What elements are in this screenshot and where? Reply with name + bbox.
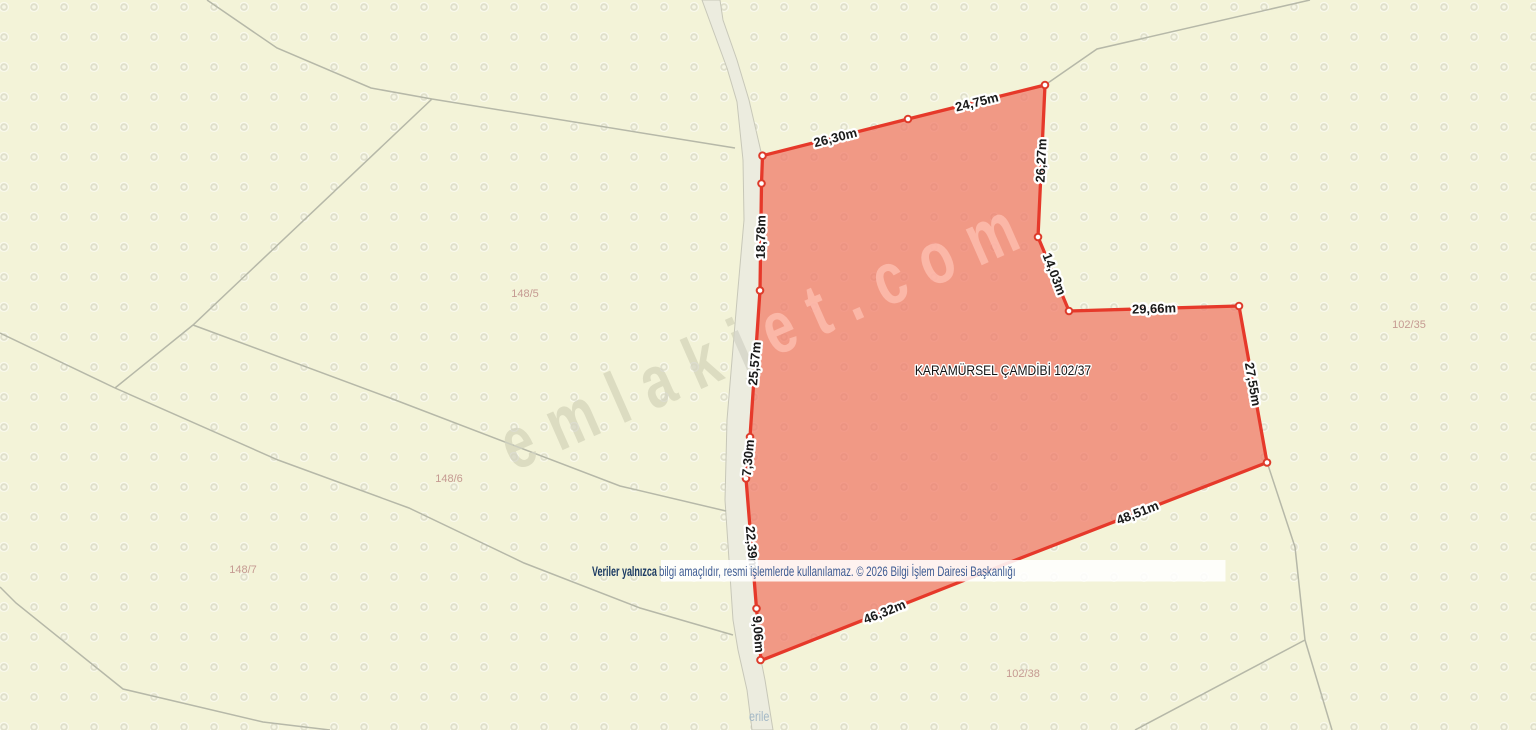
svg-text:102/35: 102/35 bbox=[1392, 319, 1426, 331]
svg-text:148/5: 148/5 bbox=[511, 288, 539, 300]
svg-text:29,66m: 29,66m bbox=[1132, 300, 1177, 316]
svg-text:bilgi amaçlıdır, resmi işlemle: bilgi amaçlıdır, resmi işlemlerde kullan… bbox=[659, 563, 1016, 579]
svg-text:148/7: 148/7 bbox=[229, 564, 257, 576]
svg-text:erile: erile bbox=[749, 709, 769, 725]
svg-text:18,78m: 18,78m bbox=[753, 215, 769, 259]
svg-text:KARAMÜRSEL ÇAMDİBİ 102/37: KARAMÜRSEL ÇAMDİBİ 102/37 bbox=[915, 362, 1091, 378]
svg-text:148/6: 148/6 bbox=[435, 473, 463, 485]
svg-text:26,27m: 26,27m bbox=[1033, 138, 1050, 183]
svg-text:9,06m: 9,06m bbox=[750, 615, 768, 653]
svg-text:Veriler yalnızca: Veriler yalnızca bbox=[592, 564, 657, 579]
svg-text:102/38: 102/38 bbox=[1006, 668, 1040, 680]
